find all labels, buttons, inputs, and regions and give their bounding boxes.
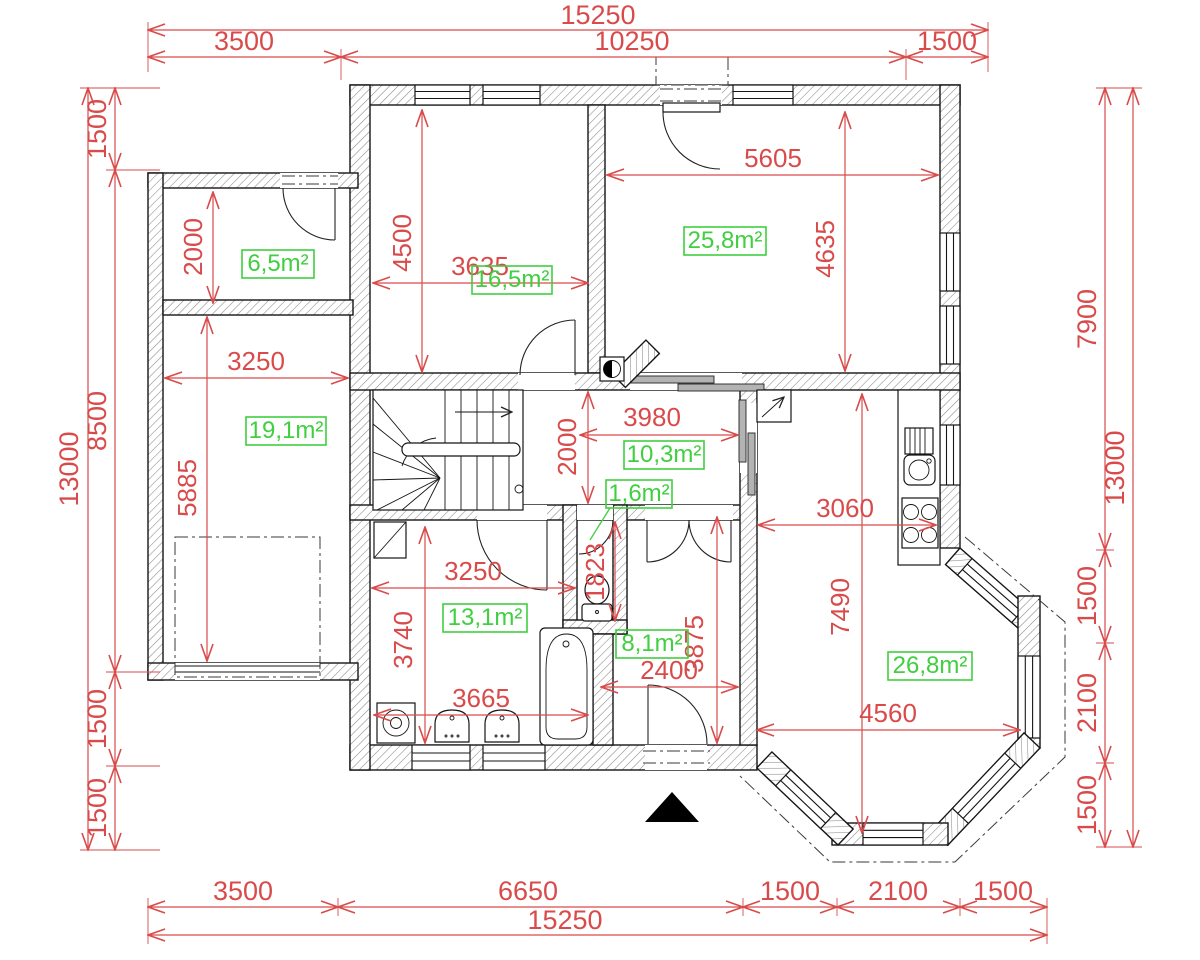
dim-top-seg3: 1500 [917, 26, 977, 56]
dim-right-seg1: 7900 [1072, 289, 1102, 349]
wall-wing-west [148, 173, 163, 680]
area-entry: 8,1m² [621, 630, 682, 657]
chimney-symbol [600, 357, 624, 381]
dim-left-seg4: 1500 [82, 778, 112, 838]
door-double-hall [645, 505, 733, 562]
area-storage: 6,5m² [247, 250, 308, 277]
area-bed2: 25,8m² [688, 227, 763, 254]
window-north-1 [415, 85, 470, 105]
door-bed1 [518, 320, 575, 390]
dim-right-seg3: 2100 [1072, 673, 1102, 733]
area-garage: 19,1m² [249, 417, 324, 444]
washing-machine [377, 703, 415, 743]
area-bed1: 16,5m² [475, 266, 550, 293]
wall-bed1-east [588, 105, 605, 373]
dim-bottom-seg2: 6650 [498, 876, 558, 906]
dim-right-total: 13000 [1100, 430, 1130, 505]
dim-hall-w: 3980 [623, 402, 681, 432]
dim-garage-w: 3250 [227, 346, 285, 376]
cabinet [374, 522, 406, 558]
dim-wc-h: 1823 [580, 543, 610, 601]
dim-bed2-w: 5605 [744, 143, 802, 173]
dim-left-seg1: 1500 [82, 99, 112, 159]
dim-hall-h: 2000 [552, 418, 582, 476]
area-wc: 1,6m² [608, 480, 669, 507]
window-north-2 [483, 85, 540, 105]
entrance-arrow [645, 792, 699, 822]
dim-bed2-h: 4635 [810, 220, 840, 278]
window-north-3 [733, 85, 793, 105]
dim-bath-h: 3740 [388, 611, 418, 669]
bay-window-east [1018, 656, 1040, 738]
porch-top-outline [656, 57, 728, 85]
dim-storage-h: 2000 [178, 218, 208, 276]
kitchen-sink [904, 428, 935, 485]
window-east-1 [940, 233, 960, 291]
dim-right-seg4: 1500 [1072, 775, 1102, 835]
dim-bottom-seg5: 1500 [973, 876, 1033, 906]
dim-bed1-h: 4500 [387, 214, 417, 272]
dim-top-seg1: 3500 [214, 26, 274, 56]
wall-wc-west [563, 505, 577, 634]
window-east-2 [940, 306, 960, 364]
door-wing-entry [280, 173, 338, 240]
dim-left-seg2: 8500 [82, 391, 112, 451]
window-south-1 [412, 745, 470, 770]
dim-top-seg2: 10250 [594, 26, 669, 56]
dim-bath-w: 3250 [444, 556, 502, 586]
area-bath: 13,1m² [448, 604, 523, 631]
staircase [373, 390, 523, 510]
dim-bottom-seg3: 1500 [760, 876, 820, 906]
dim-left-total: 13000 [54, 431, 84, 506]
bay-wall-sw [757, 752, 853, 845]
area-hall: 10,3m² [627, 441, 702, 468]
wall-tub-east [593, 634, 613, 745]
bay-window-south [863, 823, 923, 845]
dim-bottom-seg4: 2100 [868, 876, 928, 906]
door-main-entry [645, 685, 707, 770]
garage-parking-outline [175, 537, 320, 677]
dim-living-w: 4560 [859, 698, 917, 728]
window-south-2 [483, 745, 545, 770]
dim-garage-h: 5885 [172, 459, 202, 517]
dim-bath-w2: 3665 [452, 683, 510, 713]
bathtub [540, 628, 593, 745]
floor-plan-canvas: 15250 3500 10250 1500 3500 6650 1500 210… [0, 0, 1200, 960]
dim-kitchen-w: 3060 [816, 493, 874, 523]
dim-entry-w: 2400 [640, 655, 698, 685]
area-living: 26,8m² [893, 652, 968, 679]
window-east-kitchen [940, 425, 960, 485]
dim-bottom-seg1: 3500 [213, 876, 273, 906]
kitchen-stove [902, 498, 938, 548]
wall-storage-garage [163, 300, 353, 315]
dim-left-seg3: 1500 [82, 689, 112, 749]
dim-living-h: 7490 [825, 578, 855, 636]
dim-right-seg2: 1500 [1072, 566, 1102, 626]
dim-bottom-total: 15250 [527, 905, 602, 935]
door-balcony [660, 85, 722, 169]
